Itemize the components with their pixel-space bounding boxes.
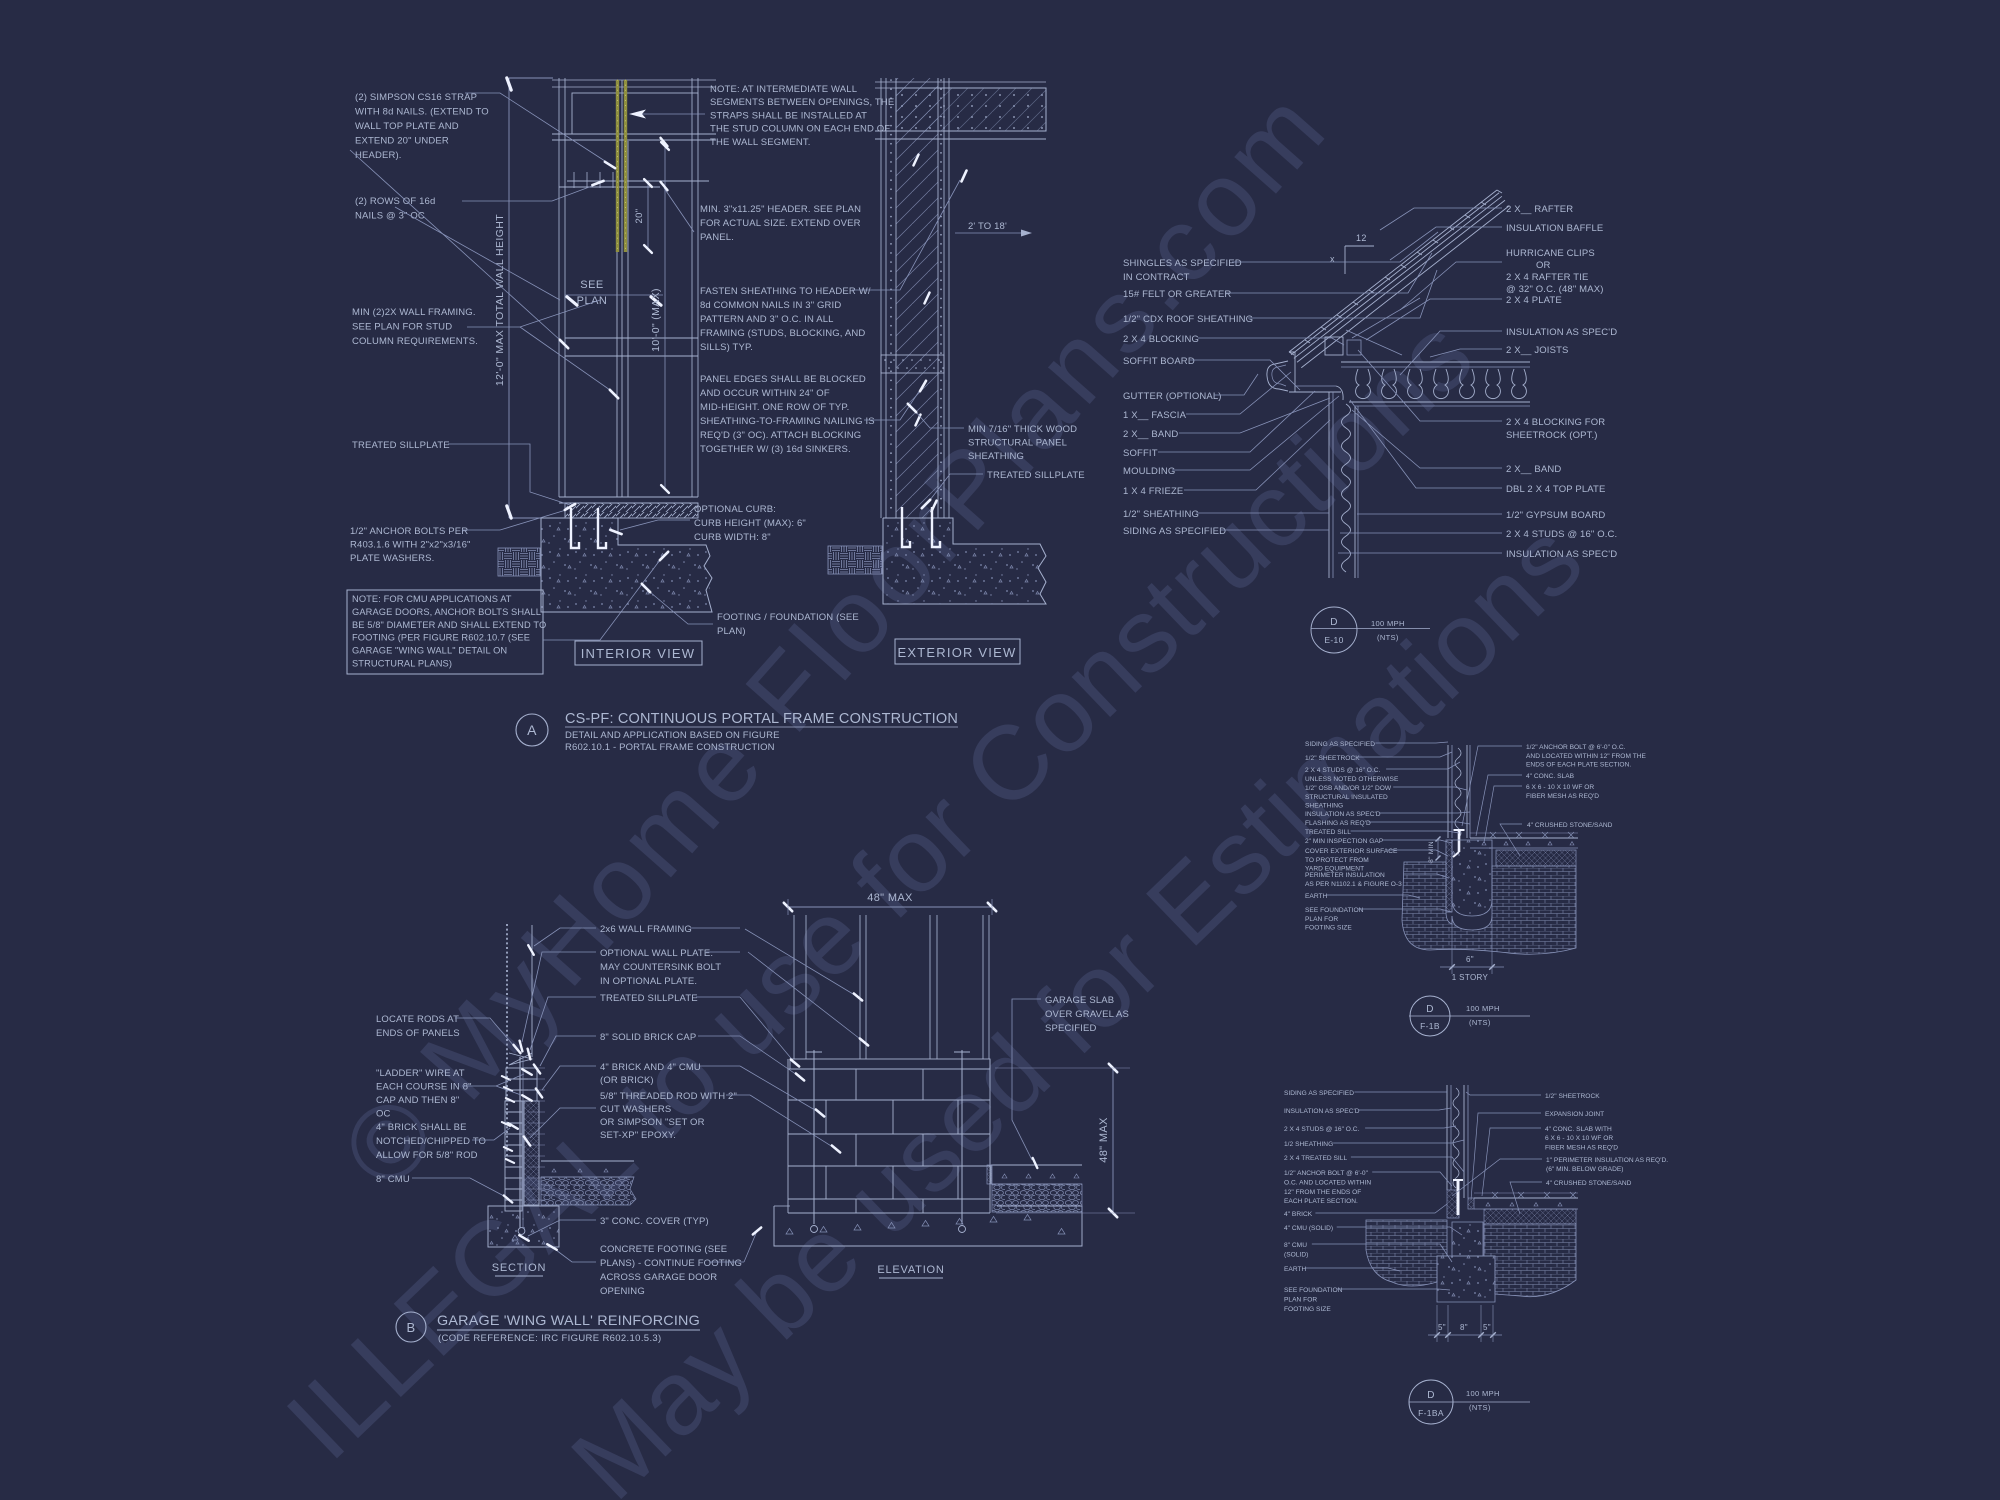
svg-text:2 X 4 STUDS @ 16" O.C.: 2 X 4 STUDS @ 16" O.C. (1284, 1126, 1360, 1133)
svg-text:AS PER N1102.1 & FIGURE O-3: AS PER N1102.1 & FIGURE O-3 (1305, 881, 1402, 888)
svg-text:CURB HEIGHT (MAX): 6": CURB HEIGHT (MAX): 6" (694, 518, 806, 529)
svg-text:(NTS): (NTS) (1377, 633, 1399, 642)
svg-text:(NTS): (NTS) (1469, 1403, 1491, 1412)
svg-text:FASTEN SHEATHING TO HEADER W/: FASTEN SHEATHING TO HEADER W/ (700, 286, 871, 297)
svg-text:1/2" CDX ROOF SHEATHING: 1/2" CDX ROOF SHEATHING (1123, 314, 1253, 325)
svg-text:1/2" GYPSUM BOARD: 1/2" GYPSUM BOARD (1506, 510, 1605, 521)
svg-text:SHEATHING-TO-FRAMING NAILING I: SHEATHING-TO-FRAMING NAILING IS (700, 416, 875, 427)
svg-text:FOOTING (PER FIGURE R602.10.7: FOOTING (PER FIGURE R602.10.7 (SEE (352, 633, 530, 643)
svg-text:@ 32" O.C. (48" MAX): @ 32" O.C. (48" MAX) (1506, 284, 1604, 295)
svg-text:10'-0" (MAX): 10'-0" (MAX) (650, 288, 662, 352)
svg-text:A: A (527, 722, 537, 738)
svg-text:STRUCTURAL PLANS): STRUCTURAL PLANS) (352, 659, 452, 669)
svg-text:ALLOW FOR 5/8" ROD: ALLOW FOR 5/8" ROD (376, 1150, 478, 1161)
svg-text:SILLS) TYP.: SILLS) TYP. (700, 342, 753, 353)
svg-text:1/2 SHEATHING: 1/2 SHEATHING (1284, 1141, 1333, 1148)
svg-text:4" CONC. SLAB WITH: 4" CONC. SLAB WITH (1545, 1126, 1612, 1133)
svg-text:INTERIOR VIEW: INTERIOR VIEW (581, 646, 696, 661)
svg-text:5": 5" (1438, 1323, 1446, 1332)
svg-text:x: x (1330, 254, 1335, 264)
svg-text:SEGMENTS BETWEEN OPENINGS, THE: SEGMENTS BETWEEN OPENINGS, THE (710, 97, 894, 108)
svg-text:R602.10.1 - PORTAL FRAME CONST: R602.10.1 - PORTAL FRAME CONSTRUCTION (565, 742, 775, 753)
svg-text:100 MPH: 100 MPH (1466, 1389, 1500, 1398)
svg-text:TREATED SILL: TREATED SILL (1305, 829, 1351, 836)
svg-text:PLANS) - CONTINUE FOOTING: PLANS) - CONTINUE FOOTING (600, 1258, 742, 1269)
svg-text:REQ'D (3" OC). ATTACH BLOCKIN: REQ'D (3" OC). ATTACH BLOCKING (700, 430, 861, 441)
svg-text:SHINGLES AS SPECIFIED: SHINGLES AS SPECIFIED (1123, 258, 1242, 269)
svg-text:FIBER MESH AS REQ'D: FIBER MESH AS REQ'D (1545, 1144, 1618, 1151)
svg-text:D: D (1330, 617, 1338, 628)
svg-text:AND OCCUR WITHIN 24" OF: AND OCCUR WITHIN 24" OF (700, 388, 830, 399)
svg-text:CURB WIDTH: 8": CURB WIDTH: 8" (694, 532, 771, 543)
svg-text:1/2" SHEETROCK: 1/2" SHEETROCK (1545, 1093, 1600, 1100)
svg-text:4" CRUSHED STONE/SAND: 4" CRUSHED STONE/SAND (1546, 1180, 1632, 1187)
svg-text:OR SIMPSON "SET OR: OR SIMPSON "SET OR (600, 1117, 705, 1128)
svg-text:ENDS OF EACH PLATE SECTION.: ENDS OF EACH PLATE SECTION. (1526, 762, 1631, 769)
svg-text:2 X__ BAND: 2 X__ BAND (1506, 464, 1561, 475)
svg-text:SHEATHING: SHEATHING (968, 451, 1024, 462)
svg-text:NAILS @ 3" OC: NAILS @ 3" OC (355, 211, 425, 222)
svg-text:STRUCTURAL INSULATED: STRUCTURAL INSULATED (1305, 794, 1388, 801)
svg-text:FIBER MESH AS REQ'D: FIBER MESH AS REQ'D (1526, 793, 1599, 800)
svg-text:48" MAX: 48" MAX (1098, 1117, 1110, 1163)
svg-text:1" PERIMETER INSULATION AS RE: 1" PERIMETER INSULATION AS REQ'D. (1546, 1157, 1668, 1164)
svg-text:2 X__ BAND: 2 X__ BAND (1123, 429, 1178, 440)
svg-text:STRUCTURAL PANEL: STRUCTURAL PANEL (968, 438, 1067, 449)
svg-text:4" CONC. SLAB: 4" CONC. SLAB (1526, 773, 1575, 780)
svg-text:COLUMN REQUIREMENTS.: COLUMN REQUIREMENTS. (352, 336, 478, 347)
svg-text:UNLESS NOTED OTHERWISE: UNLESS NOTED OTHERWISE (1305, 776, 1399, 783)
svg-text:3" CONC. COVER (TYP): 3" CONC. COVER (TYP) (600, 1216, 709, 1227)
svg-text:CUT WASHERS: CUT WASHERS (600, 1104, 671, 1115)
svg-text:WALL TOP PLATE AND: WALL TOP PLATE AND (355, 121, 459, 132)
svg-text:HURRICANE CLIPS: HURRICANE CLIPS (1506, 248, 1595, 259)
svg-text:PANEL.: PANEL. (700, 232, 734, 243)
svg-text:(2) SIMPSON CS16 STRAP: (2) SIMPSON CS16 STRAP (355, 92, 477, 103)
svg-text:WITH 8d NAILS. (EXTEND TO: WITH 8d NAILS. (EXTEND TO (355, 107, 489, 118)
svg-text:SEE PLAN FOR STUD: SEE PLAN FOR STUD (352, 322, 452, 333)
svg-text:1/2" ANCHOR BOLTS PER: 1/2" ANCHOR BOLTS PER (350, 526, 468, 537)
svg-text:COVER EXTERIOR SURFACE: COVER EXTERIOR SURFACE (1305, 848, 1398, 855)
svg-text:NOTE: FOR CMU APPLICATIONS AT: NOTE: FOR CMU APPLICATIONS AT (352, 594, 512, 604)
svg-text:HEADER).: HEADER). (355, 150, 402, 161)
svg-text:PLAN FOR: PLAN FOR (1305, 916, 1338, 923)
svg-text:THE WALL SEGMENT.: THE WALL SEGMENT. (710, 137, 811, 148)
svg-text:MID-HEIGHT. ONE ROW OF TYP.: MID-HEIGHT. ONE ROW OF TYP. (700, 402, 849, 413)
svg-text:2x6 WALL FRAMING: 2x6 WALL FRAMING (600, 924, 692, 935)
svg-text:IN CONTRACT: IN CONTRACT (1123, 272, 1190, 283)
svg-text:6 X 6 - 10 X 10 WF OR: 6 X 6 - 10 X 10 WF OR (1545, 1135, 1613, 1142)
svg-text:LOCATE RODS AT: LOCATE RODS AT (376, 1014, 459, 1025)
svg-text:CS-PF: CONTINUOUS PORTAL FRAME: CS-PF: CONTINUOUS PORTAL FRAME CONSTRUCT… (565, 710, 958, 727)
svg-text:FOOTING SIZE: FOOTING SIZE (1284, 1306, 1331, 1313)
svg-text:4" BRICK: 4" BRICK (1284, 1211, 1313, 1218)
svg-text:2 X 4 STUDS @ 16" O.C.: 2 X 4 STUDS @ 16" O.C. (1305, 767, 1381, 774)
svg-text:(NTS): (NTS) (1469, 1018, 1491, 1027)
svg-text:NOTCHED/CHIPPED TO: NOTCHED/CHIPPED TO (376, 1136, 486, 1147)
svg-text:TREATED SILLPLATE: TREATED SILLPLATE (352, 440, 450, 451)
svg-text:OVER GRAVEL AS: OVER GRAVEL AS (1045, 1009, 1129, 1020)
svg-text:SHEETROCK (OPT.): SHEETROCK (OPT.) (1506, 430, 1598, 441)
svg-text:2 X 4 TREATED SILL: 2 X 4 TREATED SILL (1284, 1155, 1347, 1162)
svg-text:STRAPS SHALL BE INSTALLED AT: STRAPS SHALL BE INSTALLED AT (710, 110, 867, 121)
svg-text:FOR ACTUAL SIZE. EXTEND OVER: FOR ACTUAL SIZE. EXTEND OVER (700, 218, 861, 229)
svg-text:INSULATION BAFFLE: INSULATION BAFFLE (1506, 223, 1603, 234)
svg-text:AND LOCATED WITHIN 12" FROM TH: AND LOCATED WITHIN 12" FROM THE (1526, 753, 1647, 760)
svg-text:PERIMETER INSULATION: PERIMETER INSULATION (1305, 872, 1385, 879)
svg-text:SOFFIT: SOFFIT (1123, 448, 1158, 459)
svg-text:2 X 4 RAFTER TIE: 2 X 4 RAFTER TIE (1506, 272, 1588, 283)
svg-text:INSULATION AS SPEC'D: INSULATION AS SPEC'D (1506, 327, 1617, 338)
svg-text:D: D (1426, 1004, 1434, 1015)
svg-text:EARTH: EARTH (1284, 1266, 1307, 1273)
svg-text:EXTEND 20" UNDER: EXTEND 20" UNDER (355, 136, 449, 147)
svg-text:INSULATION AS SPEC'D: INSULATION AS SPEC'D (1305, 811, 1381, 818)
svg-text:2' TO 18': 2' TO 18' (968, 221, 1007, 232)
svg-text:(SOLID): (SOLID) (1284, 1251, 1308, 1258)
svg-text:SIDING AS SPECIFIED: SIDING AS SPECIFIED (1123, 526, 1226, 537)
svg-text:FLASHING AS REQ'D: FLASHING AS REQ'D (1305, 820, 1371, 827)
svg-text:(2) ROWS OF 16d: (2) ROWS OF 16d (355, 196, 435, 207)
svg-text:1/2" SHEETROCK: 1/2" SHEETROCK (1305, 755, 1360, 762)
svg-text:5": 5" (1483, 1323, 1491, 1332)
svg-text:IN OPTIONAL PLATE.: IN OPTIONAL PLATE. (600, 976, 697, 987)
svg-text:F-1BA: F-1BA (1418, 1408, 1444, 1418)
svg-text:GARAGE DOORS, ANCHOR BOLTS SHA: GARAGE DOORS, ANCHOR BOLTS SHALL (352, 607, 541, 617)
svg-text:MIN. 3"x11.25" HEADER. SEE PLA: MIN. 3"x11.25" HEADER. SEE PLAN (700, 204, 861, 215)
svg-text:4" CRUSHED STONE/SAND: 4" CRUSHED STONE/SAND (1527, 822, 1613, 829)
svg-text:2 X 4 BLOCKING FOR: 2 X 4 BLOCKING FOR (1506, 417, 1605, 428)
svg-text:1/2" OSB AND/OR 1/2" DOW: 1/2" OSB AND/OR 1/2" DOW (1305, 785, 1392, 792)
svg-text:20": 20" (634, 209, 645, 224)
svg-text:(6" MIN. BELOW GRADE): (6" MIN. BELOW GRADE) (1546, 1166, 1624, 1173)
svg-text:12'-0" MAX TOTAL WALL HEIGHT: 12'-0" MAX TOTAL WALL HEIGHT (494, 214, 506, 386)
svg-text:EACH PLATE SECTION.: EACH PLATE SECTION. (1284, 1198, 1358, 1205)
svg-text:ELEVATION: ELEVATION (877, 1264, 944, 1276)
svg-text:8" SOLID BRICK CAP: 8" SOLID BRICK CAP (600, 1032, 696, 1043)
svg-text:SOFFIT BOARD: SOFFIT BOARD (1123, 356, 1195, 367)
svg-text:NOTE: AT INTERMEDIATE WALL: NOTE: AT INTERMEDIATE WALL (710, 84, 857, 95)
svg-text:4" CMU (SOLID): 4" CMU (SOLID) (1284, 1225, 1333, 1232)
svg-text:1 X 4 FRIEZE: 1 X 4 FRIEZE (1123, 486, 1183, 497)
svg-text:O.C. AND LOCATED WITHIN: O.C. AND LOCATED WITHIN (1284, 1179, 1371, 1186)
svg-text:SIDING AS SPECIFIED: SIDING AS SPECIFIED (1284, 1090, 1354, 1097)
svg-text:E-10: E-10 (1324, 635, 1343, 645)
svg-text:TOGETHER W/ (3) 16d SINKERS.: TOGETHER W/ (3) 16d SINKERS. (700, 444, 851, 455)
svg-text:FOOTING SIZE: FOOTING SIZE (1305, 925, 1352, 932)
svg-text:8" CMU: 8" CMU (1284, 1242, 1307, 1249)
svg-text:2 X 4 BLOCKING: 2 X 4 BLOCKING (1123, 334, 1199, 345)
svg-text:MOULDING: MOULDING (1123, 466, 1175, 477)
svg-text:8" MIN: 8" MIN (1428, 841, 1435, 863)
svg-text:SET-XP" EPOXY.: SET-XP" EPOXY. (600, 1130, 676, 1141)
svg-text:TO PROTECT FROM: TO PROTECT FROM (1305, 857, 1369, 864)
svg-text:SIDING AS SPECIFIED: SIDING AS SPECIFIED (1305, 741, 1375, 748)
svg-text:1 X__ FASCIA: 1 X__ FASCIA (1123, 410, 1187, 421)
svg-text:OR: OR (1536, 260, 1551, 271)
svg-text:TREATED SILLPLATE: TREATED SILLPLATE (987, 470, 1085, 481)
svg-text:1/2" ANCHOR BOLT @ 6'-0" O.C.: 1/2" ANCHOR BOLT @ 6'-0" O.C. (1526, 744, 1626, 751)
svg-text:EXTERIOR VIEW: EXTERIOR VIEW (898, 645, 1017, 660)
svg-text:48" MAX: 48" MAX (867, 892, 913, 904)
svg-text:PATTERN AND 3" O.C. IN ALL: PATTERN AND 3" O.C. IN ALL (700, 314, 834, 325)
svg-text:ACROSS GARAGE DOOR: ACROSS GARAGE DOOR (600, 1272, 717, 1283)
svg-text:2 X 4 PLATE: 2 X 4 PLATE (1506, 295, 1562, 306)
svg-text:MIN 7/16" THICK WOOD: MIN 7/16" THICK WOOD (968, 424, 1077, 435)
svg-text:4" BRICK SHALL BE: 4" BRICK SHALL BE (376, 1122, 467, 1133)
svg-text:FOOTING / FOUNDATION (SEE: FOOTING / FOUNDATION (SEE (717, 612, 859, 623)
svg-text:2 X__ JOISTS: 2 X__ JOISTS (1506, 345, 1569, 356)
svg-text:D: D (1427, 1390, 1435, 1401)
svg-text:SEE: SEE (580, 279, 604, 291)
svg-text:OPENING: OPENING (600, 1286, 645, 1297)
svg-text:DETAIL AND APPLICATION BASED O: DETAIL AND APPLICATION BASED ON FIGURE (565, 730, 780, 741)
svg-text:1/2" SHEATHING: 1/2" SHEATHING (1123, 509, 1199, 520)
svg-text:12: 12 (1356, 233, 1367, 243)
svg-text:4" BRICK AND 4" CMU: 4" BRICK AND 4" CMU (600, 1062, 701, 1073)
svg-text:SHEATHING: SHEATHING (1305, 803, 1343, 810)
svg-text:MIN (2)2X WALL FRAMING.: MIN (2)2X WALL FRAMING. (352, 307, 476, 318)
svg-text:2" MIN INSPECTION GAP: 2" MIN INSPECTION GAP (1305, 838, 1384, 845)
svg-text:EXPANSION JOINT: EXPANSION JOINT (1545, 1111, 1604, 1118)
svg-text:ENDS OF PANELS: ENDS OF PANELS (376, 1028, 460, 1039)
svg-text:MAY COUNTERSINK BOLT: MAY COUNTERSINK BOLT (600, 962, 721, 973)
svg-text:(CODE REFERENCE: IRC FIGURE R6: (CODE REFERENCE: IRC FIGURE R602.10.5.3) (438, 1333, 662, 1344)
svg-text:1 STORY: 1 STORY (1452, 973, 1489, 982)
svg-text:INSULATION AS SPEC'D: INSULATION AS SPEC'D (1284, 1108, 1360, 1115)
svg-text:100 MPH: 100 MPH (1371, 619, 1405, 628)
svg-text:DBL 2 X 4 TOP PLATE: DBL 2 X 4 TOP PLATE (1506, 484, 1605, 495)
svg-text:PLAN): PLAN) (717, 626, 746, 637)
svg-text:CAP AND THEN 8": CAP AND THEN 8" (376, 1095, 459, 1106)
svg-text:8d COMMON NAILS IN 3" GRID: 8d COMMON NAILS IN 3" GRID (700, 300, 841, 311)
svg-text:SECTION: SECTION (492, 1262, 547, 1274)
svg-text:SEE FOUNDATION: SEE FOUNDATION (1284, 1287, 1343, 1294)
svg-text:PANEL EDGES SHALL BE BLOCKED: PANEL EDGES SHALL BE BLOCKED (700, 374, 866, 385)
svg-text:TREATED SILLPLATE: TREATED SILLPLATE (600, 993, 698, 1004)
svg-text:CONCRETE FOOTING (SEE: CONCRETE FOOTING (SEE (600, 1244, 727, 1255)
svg-text:OC: OC (376, 1109, 391, 1120)
svg-text:8": 8" (1460, 1323, 1468, 1332)
svg-text:1/2" ANCHOR BOLT @ 6'-0": 1/2" ANCHOR BOLT @ 6'-0" (1284, 1170, 1369, 1177)
svg-text:GARAGE SLAB: GARAGE SLAB (1045, 995, 1114, 1006)
svg-text:5/8" THREADED ROD WITH 2": 5/8" THREADED ROD WITH 2" (600, 1091, 737, 1102)
svg-text:BE 5/8" DIAMETER AND SHALL EXT: BE 5/8" DIAMETER AND SHALL EXTEND TO (352, 620, 546, 630)
svg-text:F-1B: F-1B (1420, 1021, 1440, 1031)
svg-text:FRAMING (STUDS, BLOCKING, AND: FRAMING (STUDS, BLOCKING, AND (700, 328, 865, 339)
svg-text:(OR BRICK): (OR BRICK) (600, 1075, 654, 1086)
svg-text:15# FELT OR GREATER: 15# FELT OR GREATER (1123, 289, 1231, 300)
svg-text:2 X__ RAFTER: 2 X__ RAFTER (1506, 204, 1573, 215)
svg-text:"LADDER" WIRE AT: "LADDER" WIRE AT (376, 1068, 465, 1079)
svg-text:B: B (406, 1320, 415, 1335)
svg-text:PLAN FOR: PLAN FOR (1284, 1296, 1317, 1303)
svg-text:GARAGE "WING WALL" DETAIL ON: GARAGE "WING WALL" DETAIL ON (352, 646, 507, 656)
svg-text:6 X 6 - 10 X 10 WF OR: 6 X 6 - 10 X 10 WF OR (1526, 784, 1594, 791)
svg-text:SEE FOUNDATION: SEE FOUNDATION (1305, 907, 1364, 914)
svg-text:PLATE WASHERS.: PLATE WASHERS. (350, 553, 434, 564)
svg-text:8" CMU: 8" CMU (376, 1174, 410, 1185)
svg-text:THE STUD COLUMN ON EACH END OF: THE STUD COLUMN ON EACH END OF (710, 124, 890, 135)
svg-text:GUTTER (OPTIONAL): GUTTER (OPTIONAL) (1123, 391, 1222, 402)
svg-text:PLAN: PLAN (577, 295, 608, 307)
svg-text:SPECIFIED: SPECIFIED (1045, 1023, 1097, 1034)
svg-text:EARTH: EARTH (1305, 893, 1328, 900)
svg-text:GARAGE 'WING WALL' REINFORCING: GARAGE 'WING WALL' REINFORCING (437, 1312, 700, 1328)
svg-text:12" FROM THE ENDS OF: 12" FROM THE ENDS OF (1284, 1189, 1361, 1196)
svg-text:OPTIONAL WALL PLATE.: OPTIONAL WALL PLATE. (600, 948, 713, 959)
svg-text:100 MPH: 100 MPH (1466, 1004, 1500, 1013)
svg-text:2 X 4 STUDS @ 16" O.C.: 2 X 4 STUDS @ 16" O.C. (1506, 529, 1617, 540)
svg-text:6": 6" (1466, 955, 1474, 964)
svg-text:EACH COURSE IN 8": EACH COURSE IN 8" (376, 1082, 472, 1093)
svg-text:OPTIONAL CURB:: OPTIONAL CURB: (694, 504, 776, 515)
svg-text:INSULATION AS SPEC'D: INSULATION AS SPEC'D (1506, 549, 1617, 560)
svg-text:R403.1.6 WITH 2"x2"x3/16": R403.1.6 WITH 2"x2"x3/16" (350, 540, 471, 551)
